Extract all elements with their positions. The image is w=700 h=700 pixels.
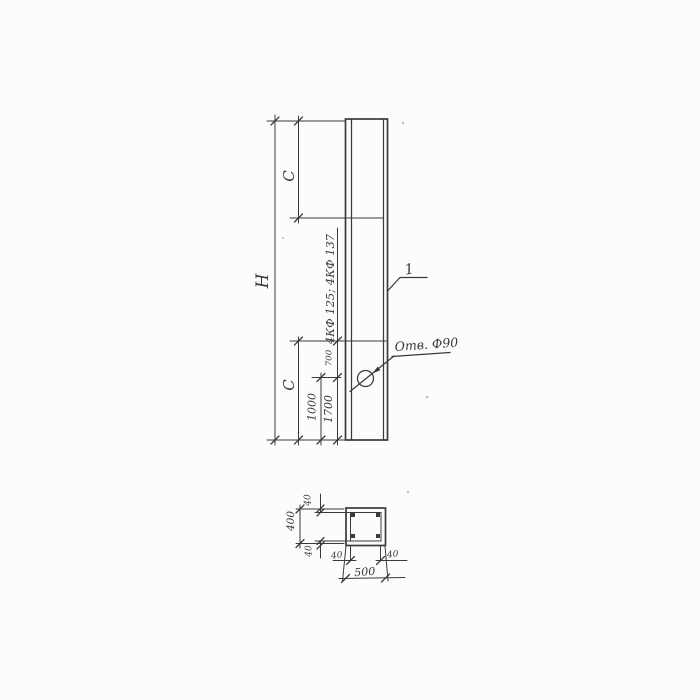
hole-callout-label: Отв. Ф90: [394, 335, 459, 354]
dim-height-label: H: [253, 272, 273, 289]
dim-1700-label: 1700: [322, 395, 335, 423]
scan-speck: [426, 396, 429, 399]
dim-cover-top: 40: [304, 494, 351, 516]
dim-bottom-segment-label: C: [280, 379, 298, 391]
rebar-top-right: [376, 513, 380, 517]
hole-callout: Отв. Ф90: [350, 335, 459, 392]
dim-1000-label: 1000: [306, 393, 319, 421]
dim-chain-1700: 700 1700: [322, 337, 342, 444]
dim-40-top-label: 40: [304, 494, 314, 507]
part-leader-line: [388, 278, 401, 292]
rebar-top-left: [351, 513, 355, 517]
dim-40-bottom-label: 40: [305, 545, 315, 558]
dim-top-segment: C: [280, 116, 303, 223]
elevation-view: H C C 4КФ 125; 4КФ 137 1000: [253, 115, 459, 445]
dim-overall-height: H: [253, 115, 279, 445]
rebar-bottom-left: [351, 534, 355, 538]
dim-40-right-label: 40: [386, 549, 400, 560]
part-number-label: 1: [403, 261, 415, 278]
part-number-callout: 1: [388, 261, 428, 291]
series-mark-label: 4КФ 125; 4КФ 137: [323, 233, 337, 345]
dim-40-left-label: 40: [330, 550, 344, 561]
scan-speck: [282, 237, 284, 239]
column-outline: [290, 119, 388, 440]
dim-top-segment-label: C: [280, 170, 298, 182]
dim-section-height: 400: [285, 505, 344, 548]
dim-side-covers: 40 40: [330, 546, 407, 565]
scan-speck: [402, 122, 404, 124]
dim-bottom-segment: C: [280, 337, 303, 445]
technical-drawing: H C C 4КФ 125; 4КФ 137 1000: [0, 0, 700, 700]
scan-speck: [407, 491, 409, 493]
dim-700-label: 700: [325, 349, 335, 366]
dim-400-label: 400: [285, 511, 297, 532]
section-view: 400 40 40 40 40: [285, 494, 407, 583]
section-outline: [346, 508, 386, 546]
dim-500-label: 500: [354, 565, 376, 579]
dim-cover-bottom: 40: [305, 538, 351, 559]
rebar-bottom-right: [376, 534, 380, 538]
drawing-sheet: H C C 4КФ 125; 4КФ 137 1000: [0, 0, 700, 700]
